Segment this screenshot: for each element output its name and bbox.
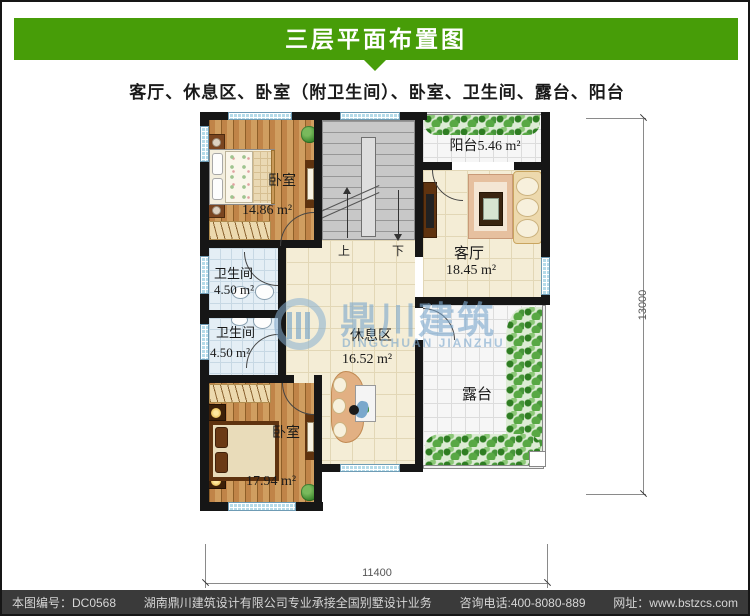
page-subtitle: 客厅、休息区、卧室（附卫生间）、卧室、卫生间、露台、阳台 xyxy=(2,78,750,103)
wall-balcony-living-left xyxy=(423,162,452,170)
sofa-cushion xyxy=(333,422,347,438)
terrace-greenery-bottom xyxy=(425,434,540,465)
wardrobe xyxy=(209,221,271,240)
footer-bar: 本图编号：DC0568 湖南鼎川建筑设计有限公司专业承接全国别墅设计业务 咨询电… xyxy=(2,590,748,614)
wall-outer-right-upper xyxy=(541,112,550,257)
label-bedroom-bottom-area: 17.94 m² xyxy=(246,474,296,490)
sofa-cushion xyxy=(516,198,539,217)
label-living-name: 客厅 xyxy=(454,242,484,263)
pillow xyxy=(212,153,223,175)
pillow xyxy=(212,178,223,200)
balcony-railing xyxy=(423,112,543,115)
arrow-up-icon xyxy=(343,187,351,194)
window-living-right xyxy=(541,257,550,295)
nightstand xyxy=(207,134,225,150)
watermark-building-icon xyxy=(287,312,314,339)
wall-outer-right-lower xyxy=(541,295,550,305)
label-bathroom-upper-name: 卫生间 xyxy=(214,263,253,282)
sofa-cushion xyxy=(516,219,539,238)
tv xyxy=(426,194,434,228)
coffee-table-glass xyxy=(483,198,499,220)
label-bathroom-lower-name: 卫生间 xyxy=(216,322,255,341)
label-bedroom-top-area: 14.86 m² xyxy=(242,203,292,219)
label-bathroom-lower-area: 4.50 m² xyxy=(210,345,250,361)
window-bedroom-top-left xyxy=(200,126,209,162)
label-bedroom-bottom-name: 卧室 xyxy=(272,422,300,442)
stair-arrow-up-line xyxy=(347,194,348,238)
stair-label-down: 下 xyxy=(392,242,404,259)
pillow xyxy=(215,427,228,448)
toilet xyxy=(255,284,274,300)
window-bathroom-lower xyxy=(200,324,209,360)
terrace-corner-post xyxy=(529,451,546,467)
stair-label-up: 上 xyxy=(338,242,350,259)
terrace-railing-bottom xyxy=(423,465,544,469)
wall-stairs-right xyxy=(415,112,423,257)
footer-plan-number: 本图编号：DC0568 xyxy=(12,594,116,611)
window-bedroom-bottom xyxy=(228,502,296,511)
wall-bathroom-lower-bottom xyxy=(200,375,294,383)
banner-pointer-icon xyxy=(364,60,386,71)
window-bathroom-upper xyxy=(200,256,209,294)
label-bathroom-upper-area: 4.50 m² xyxy=(214,282,254,298)
page-title: 三层平面布置图 xyxy=(14,18,738,60)
duvet xyxy=(225,151,253,203)
dim-ext-right-bottom xyxy=(586,494,646,495)
footer-phone: 咨询电话:400-8080-889 xyxy=(459,594,585,611)
dim-value-right: 13000 xyxy=(637,279,649,331)
pillow xyxy=(215,452,228,473)
wardrobe xyxy=(209,384,271,403)
window-stairs xyxy=(340,112,400,120)
label-living-area: 18.45 m² xyxy=(446,263,496,279)
label-terrace-name: 露台 xyxy=(462,383,492,404)
stair-arrow-down-line xyxy=(398,190,399,236)
page: 三层平面布置图 客厅、休息区、卧室（附卫生间）、卧室、卫生间、露台、阳台 xyxy=(0,0,750,616)
arrow-down-icon xyxy=(394,234,402,241)
label-balcony-name: 阳台 xyxy=(449,139,477,154)
sofa-cushion xyxy=(333,377,347,393)
balcony-greenery xyxy=(424,114,540,135)
sofa-cushion xyxy=(332,398,346,414)
watermark: 鼎川建筑 DINGCHUAN JIANZHU xyxy=(274,290,514,366)
label-bedroom-top-name: 卧室 xyxy=(268,170,296,190)
label-balcony-area: 5.46 m² xyxy=(477,139,520,154)
footer-company: 湖南鼎川建筑设计有限公司专业承接全国别墅设计业务 xyxy=(144,594,432,611)
wall-bedroom-top-right xyxy=(314,112,322,248)
nightstand-lamp xyxy=(206,404,226,421)
wall-bedroom-bottom-right xyxy=(314,375,322,511)
terrace-railing-right xyxy=(542,305,546,467)
dim-ext-right-top xyxy=(586,118,646,119)
dim-value-bottom: 11400 xyxy=(347,567,407,579)
person-head xyxy=(349,405,359,415)
window-rest-area xyxy=(340,464,400,472)
label-balcony: 阳台5.46 m² xyxy=(435,135,535,155)
footer-website: 网址：www.bstzcs.com xyxy=(613,594,738,611)
sofa-cushion xyxy=(516,177,539,196)
dim-line-bottom xyxy=(205,583,548,584)
window-bedroom-top xyxy=(228,112,292,120)
watermark-english: DINGCHUAN JIANZHU xyxy=(342,336,522,350)
